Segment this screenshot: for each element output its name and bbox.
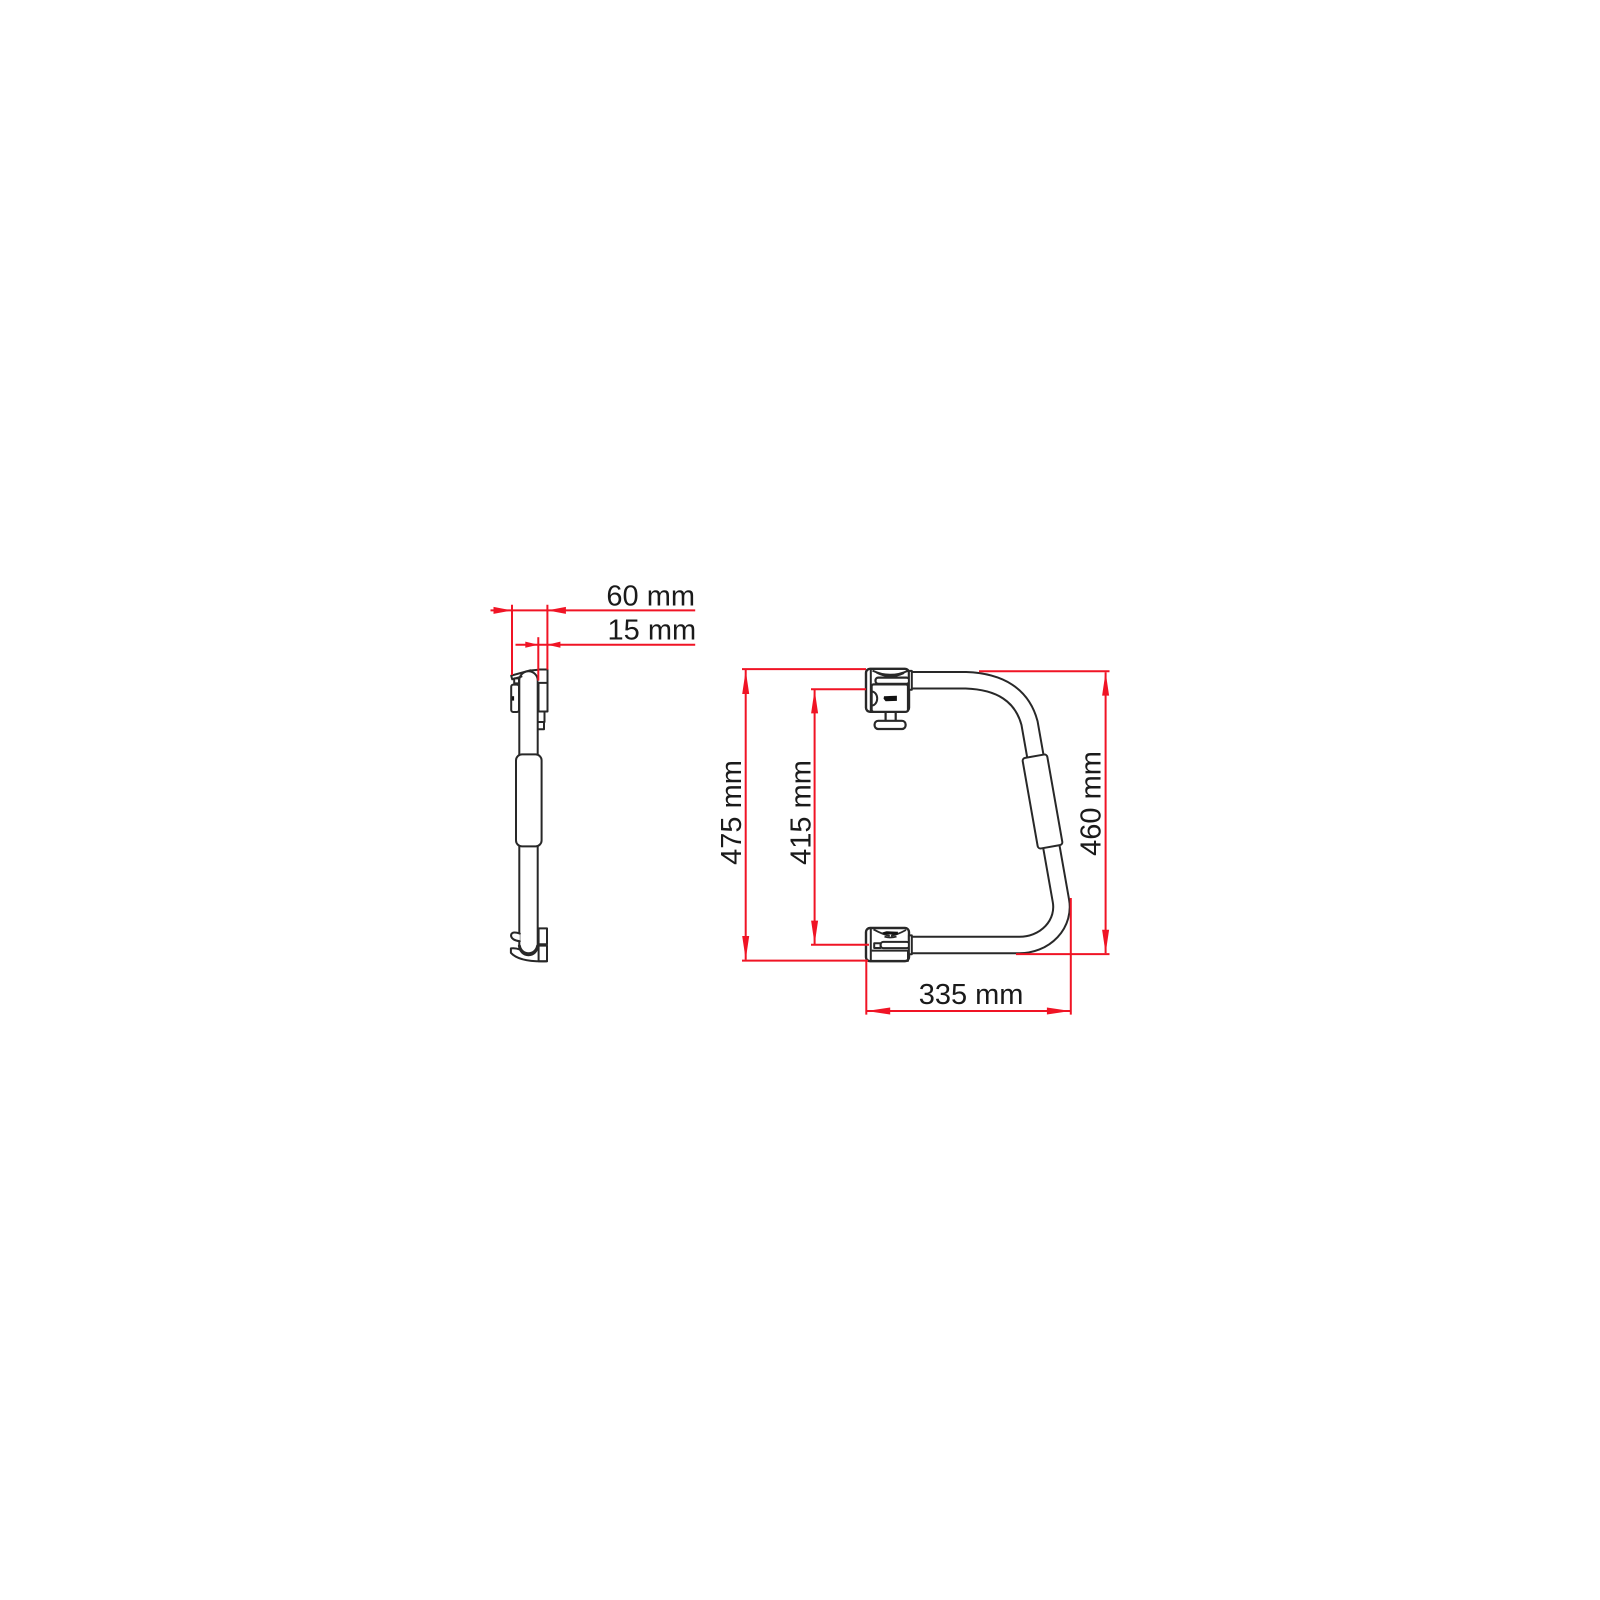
svg-text:60 mm: 60 mm (606, 581, 695, 613)
svg-text:475 mm: 475 mm (716, 760, 748, 865)
svg-text:460 mm: 460 mm (1076, 751, 1108, 856)
svg-text:15 mm: 15 mm (608, 615, 697, 647)
svg-text:335 mm: 335 mm (919, 979, 1024, 1011)
svg-text:415 mm: 415 mm (786, 760, 818, 865)
